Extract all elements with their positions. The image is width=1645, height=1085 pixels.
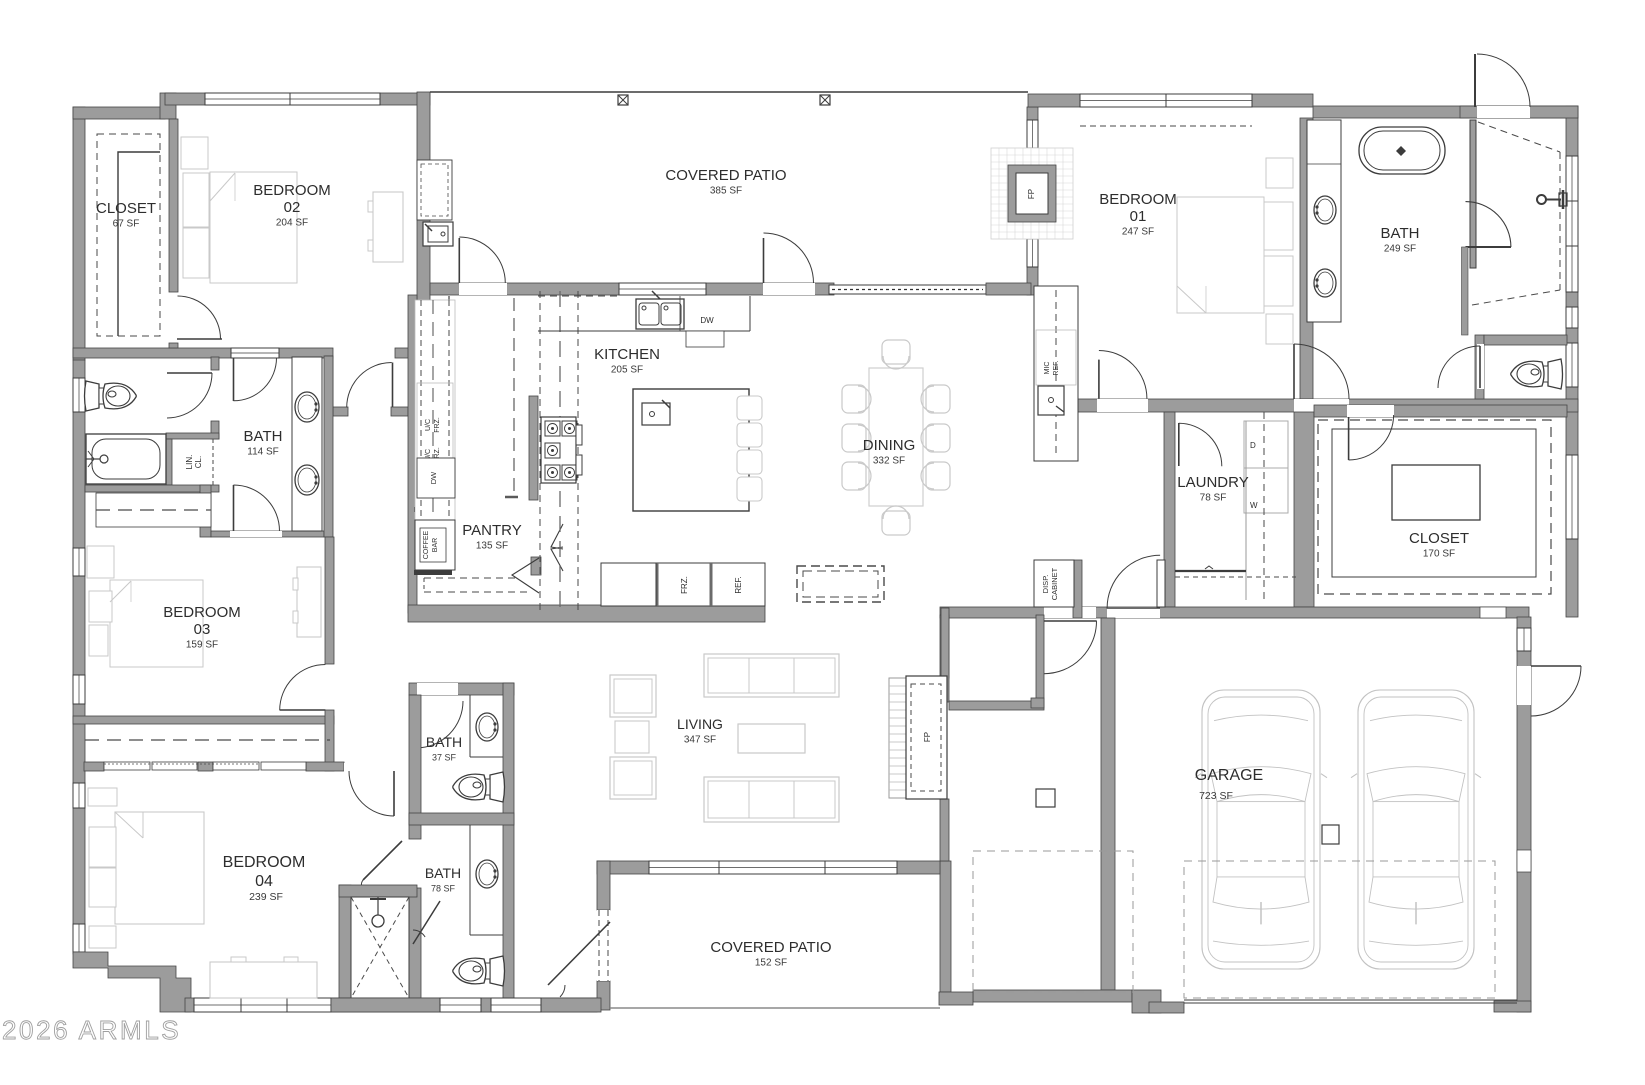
svg-text:114 SF: 114 SF (247, 447, 279, 458)
svg-text:204 SF: 204 SF (276, 218, 308, 229)
svg-text:02: 02 (284, 199, 301, 216)
svg-text:PANTRY: PANTRY (462, 522, 521, 539)
svg-text:385 SF: 385 SF (710, 186, 742, 197)
svg-text:BEDROOM: BEDROOM (253, 182, 331, 199)
svg-text:BATH: BATH (1381, 225, 1420, 242)
svg-text:2026 ARMLS: 2026 ARMLS (2, 1015, 181, 1045)
svg-text:205 SF: 205 SF (611, 365, 643, 376)
svg-text:DW: DW (700, 316, 714, 325)
svg-text:04: 04 (255, 873, 273, 890)
svg-text:332 SF: 332 SF (873, 456, 905, 467)
svg-text:247 SF: 247 SF (1122, 227, 1154, 238)
svg-text:152 SF: 152 SF (755, 958, 787, 969)
svg-text:FRZ.: FRZ. (434, 417, 441, 433)
svg-text:LIVING: LIVING (677, 716, 723, 732)
svg-text:BAR: BAR (432, 538, 439, 552)
svg-text:347 SF: 347 SF (684, 735, 716, 746)
svg-text:LIN.: LIN. (185, 455, 194, 470)
svg-text:37 SF: 37 SF (432, 753, 457, 763)
svg-text:DISP.: DISP. (1041, 575, 1050, 594)
svg-text:FP: FP (1027, 189, 1036, 199)
svg-text:FP: FP (923, 732, 932, 742)
svg-text:KITCHEN: KITCHEN (594, 346, 660, 363)
svg-text:REF.: REF. (734, 576, 743, 593)
svg-text:239 SF: 239 SF (249, 891, 283, 903)
svg-text:01: 01 (1130, 208, 1147, 225)
svg-text:LAUNDRY: LAUNDRY (1177, 474, 1248, 491)
svg-text:159 SF: 159 SF (186, 640, 218, 651)
svg-text:COFFEE: COFFEE (423, 530, 430, 559)
svg-text:GARAGE: GARAGE (1195, 767, 1263, 784)
svg-text:REF.: REF. (1053, 360, 1060, 375)
svg-text:CABINET: CABINET (1050, 567, 1059, 600)
svg-text:D: D (1250, 441, 1256, 450)
svg-text:CL.: CL. (194, 456, 203, 468)
svg-text:COVERED PATIO: COVERED PATIO (665, 167, 786, 184)
svg-text:BATH: BATH (244, 428, 283, 445)
svg-text:135 SF: 135 SF (476, 541, 508, 552)
svg-text:COVERED PATIO: COVERED PATIO (710, 939, 831, 956)
svg-text:170 SF: 170 SF (1423, 549, 1455, 560)
svg-text:249 SF: 249 SF (1384, 244, 1416, 255)
svg-text:U/C: U/C (425, 419, 432, 431)
svg-text:MIC: MIC (1044, 362, 1051, 375)
svg-text:78 SF: 78 SF (431, 884, 456, 894)
svg-text:W: W (1250, 501, 1258, 510)
svg-text:BATH: BATH (426, 734, 462, 750)
svg-text:FRZ.: FRZ. (680, 576, 689, 594)
svg-text:67 SF: 67 SF (113, 219, 140, 230)
svg-text:CLOSET: CLOSET (1409, 530, 1469, 547)
svg-text:DW: DW (429, 471, 438, 484)
svg-text:723 SF: 723 SF (1199, 790, 1233, 802)
svg-text:BEDROOM: BEDROOM (163, 604, 241, 621)
svg-text:BEDROOM: BEDROOM (1099, 191, 1177, 208)
svg-text:DINING: DINING (863, 437, 916, 454)
svg-text:78 SF: 78 SF (1200, 493, 1227, 504)
svg-text:BEDROOM: BEDROOM (223, 854, 306, 871)
svg-text:CLOSET: CLOSET (96, 200, 156, 217)
svg-text:03: 03 (194, 621, 211, 638)
svg-text:BATH: BATH (425, 865, 461, 881)
